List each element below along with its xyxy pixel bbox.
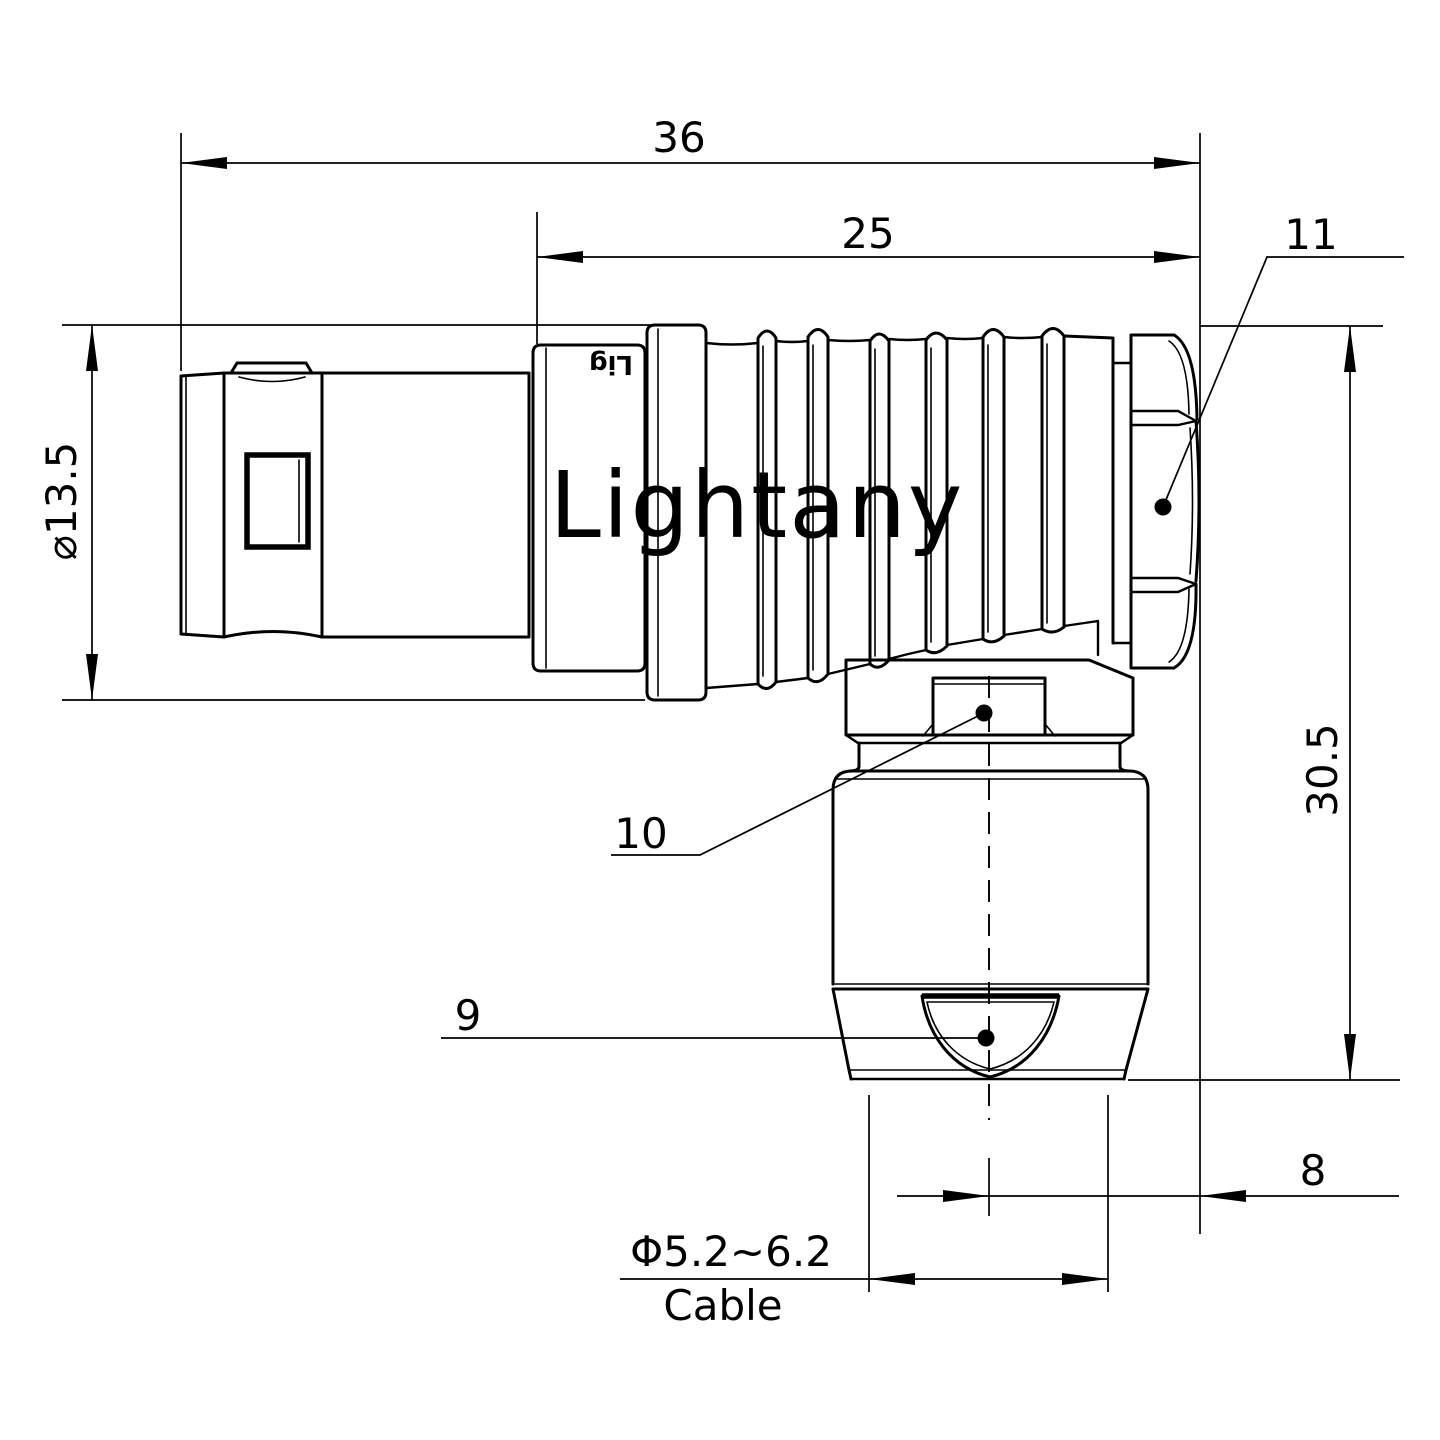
dim-30-5-value: 30.5 <box>1298 723 1347 817</box>
callout-11-dot <box>1155 499 1172 516</box>
callout-11-label: 11 <box>1284 210 1337 259</box>
dim-36-value: 36 <box>652 113 705 162</box>
dim-8-value: 8 <box>1300 1146 1327 1195</box>
dim-cable-range-value: Φ5.2~6.2 <box>630 1227 832 1276</box>
dim-25-value: 25 <box>841 209 894 258</box>
technical-drawing-page: Lightany Lig <box>0 0 1440 1440</box>
drawing-background <box>0 0 1440 1440</box>
molded-logo-text: Lig <box>589 349 633 379</box>
dim-13-5-value: ⌀13.5 <box>37 442 86 561</box>
dim-cable-label: Cable <box>663 1281 782 1330</box>
callout-10-label: 10 <box>614 809 667 858</box>
callout-9-dot <box>978 1030 995 1047</box>
callout-9-label: 9 <box>455 991 482 1040</box>
callout-10-dot <box>976 705 993 722</box>
connector-elbow-drawing: Lightany Lig <box>0 0 1440 1440</box>
